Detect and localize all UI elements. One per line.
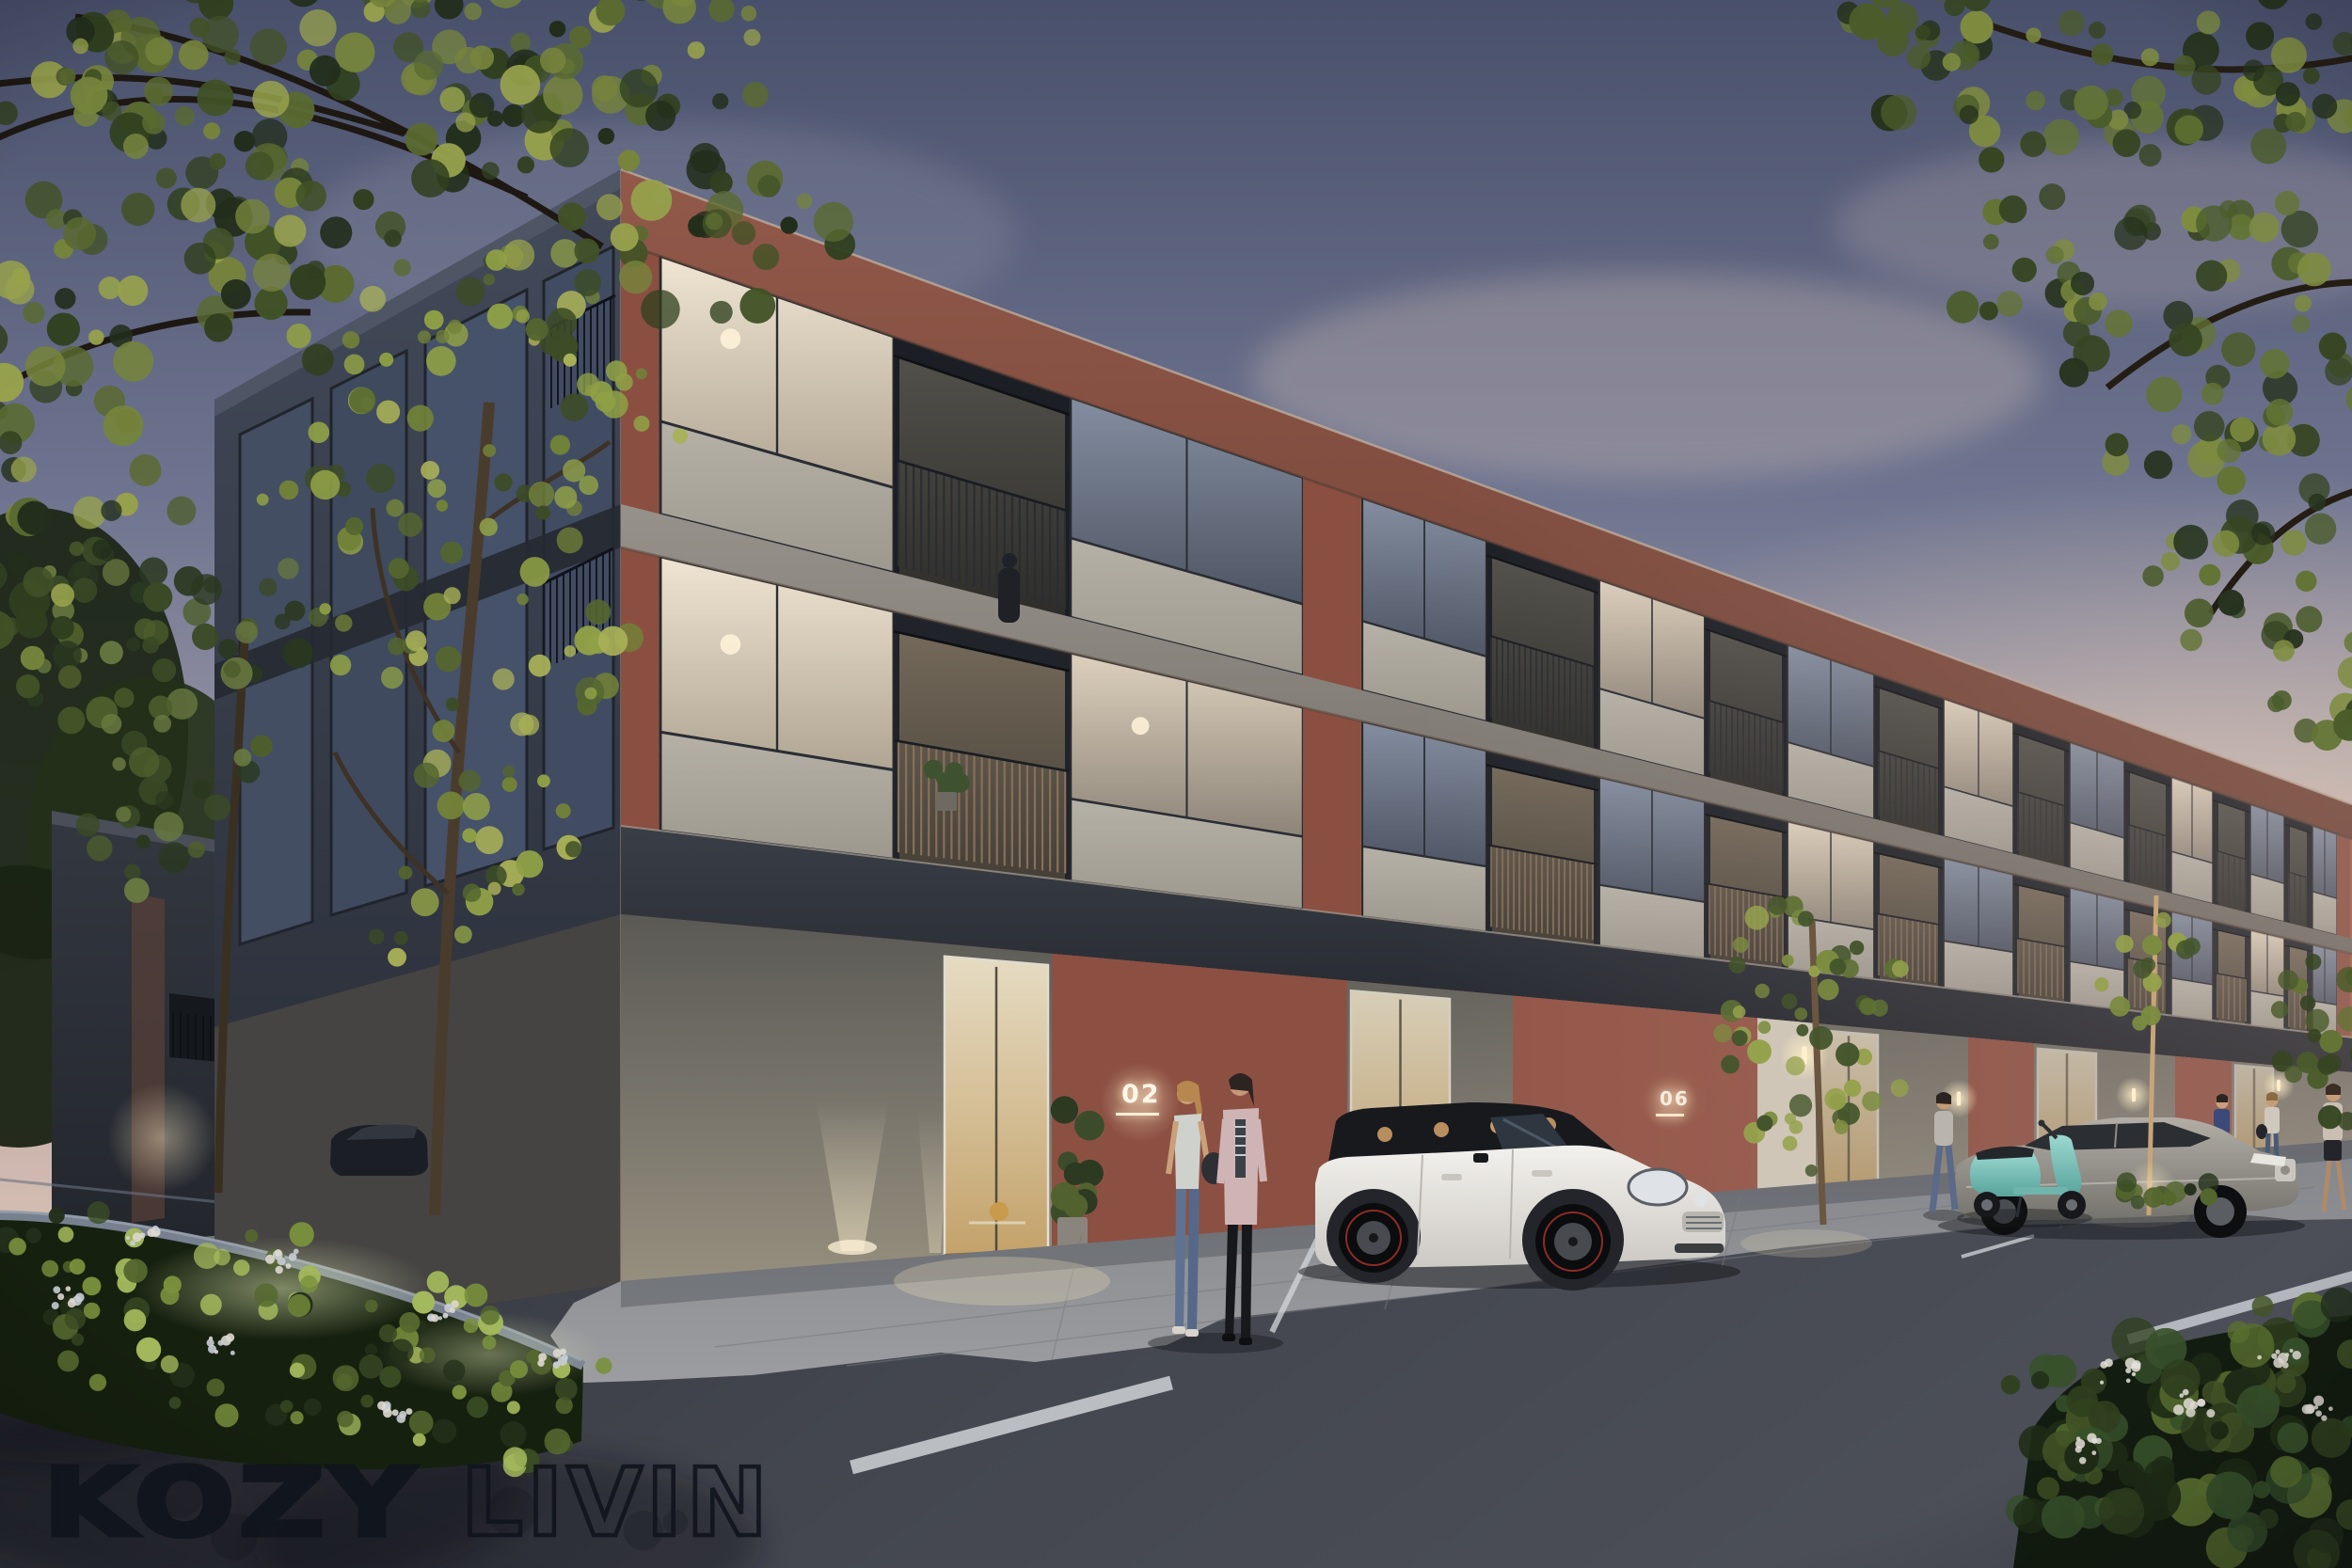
unit-number-sign-02: 02 bbox=[1121, 1080, 1161, 1116]
vignette bbox=[0, 0, 2352, 1568]
logo-word-kozy: KOZY bbox=[43, 1449, 420, 1558]
render-scene bbox=[0, 0, 2352, 1568]
kozy-livin-logo: KOZY LIVIN bbox=[26, 1449, 835, 1561]
sign-underline bbox=[1116, 1113, 1159, 1116]
sign-underline bbox=[1656, 1114, 1684, 1117]
unit-number-text: 02 bbox=[1121, 1080, 1161, 1109]
unit-number-text: 06 bbox=[1660, 1087, 1690, 1110]
exterior-dusk-render-kozy-livin: 02 06 KOZY LIVIN bbox=[0, 0, 2352, 1568]
logo-word-livin: LIVIN bbox=[461, 1449, 771, 1558]
unit-number-sign-06: 06 bbox=[1660, 1087, 1690, 1117]
